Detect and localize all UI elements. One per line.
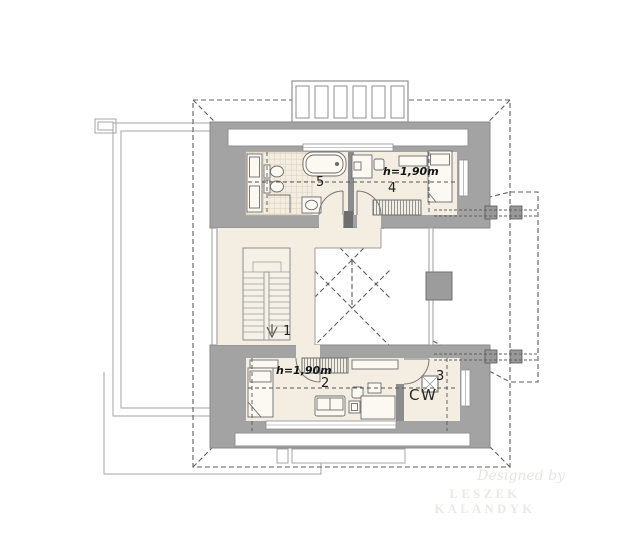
balustrade [292,81,408,122]
chimney [426,272,452,300]
room-3-label: 3 [436,370,444,383]
room-1-label: 1 [283,325,291,338]
shelf-room2 [250,360,278,368]
bathtub-icon [303,152,346,176]
hall-floor [216,228,381,345]
desk-room2 [361,396,395,419]
height-note-bottom: h=1,90m [276,365,332,376]
floor-plan-page: 5 4 h=1,90m 1 h=1,90m 2 3 CW Designed by… [0,0,638,556]
pergola-posts [485,206,522,363]
height-note-top: h=1,90m [383,166,439,177]
room-5-label: 5 [316,176,324,189]
room-4-label: 4 [388,182,396,195]
garage-roof-outline [95,119,212,416]
closet-cw-label: CW [409,388,437,403]
room-2-label: 2 [321,377,329,390]
wall-room2-room3 [396,384,404,421]
shelf-room2-right [352,360,398,369]
watermark-designed-by: Designed by [430,468,565,484]
watermark-author: LESZEK KALANDYK [398,487,572,517]
